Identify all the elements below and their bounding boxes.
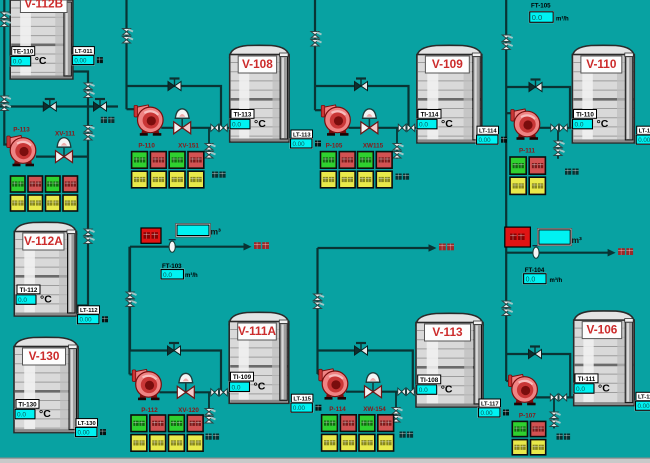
- svg-text:FT-105: FT-105: [531, 3, 551, 10]
- svg-text:TI-114: TI-114: [421, 112, 439, 119]
- svg-text:0.00: 0.00: [481, 410, 494, 417]
- svg-text:V-130: V-130: [29, 349, 60, 363]
- svg-text:0.00: 0.00: [293, 141, 306, 148]
- svg-text:LT-011: LT-011: [75, 49, 93, 55]
- svg-text:0.00: 0.00: [80, 317, 93, 324]
- svg-text:0.0: 0.0: [419, 122, 428, 129]
- svg-text:°C: °C: [39, 408, 51, 420]
- svg-text:0.0: 0.0: [17, 412, 26, 419]
- svg-text:0.0: 0.0: [532, 13, 542, 22]
- svg-text:0.00: 0.00: [78, 429, 91, 436]
- svg-text:0.00: 0.00: [479, 137, 492, 144]
- svg-text:P-110: P-110: [138, 143, 155, 150]
- svg-text:P-107: P-107: [519, 413, 536, 420]
- svg-text:P-113: P-113: [13, 127, 30, 134]
- svg-text:m³: m³: [211, 227, 222, 237]
- svg-text:LT-113: LT-113: [293, 132, 311, 138]
- svg-text:LT-115: LT-115: [293, 397, 311, 403]
- svg-text:°C: °C: [40, 294, 52, 306]
- svg-text:TE-110: TE-110: [13, 49, 34, 56]
- svg-text:0.0: 0.0: [163, 272, 172, 279]
- svg-text:0.00: 0.00: [638, 403, 650, 410]
- svg-text:LT-114: LT-114: [479, 129, 497, 135]
- svg-text:XV-151: XV-151: [178, 143, 199, 150]
- svg-text:TI-112: TI-112: [20, 287, 38, 294]
- svg-text:°C: °C: [597, 118, 609, 130]
- svg-text:LT-119: LT-119: [638, 395, 650, 401]
- svg-text:m³: m³: [572, 235, 583, 245]
- svg-text:0.00: 0.00: [74, 57, 87, 64]
- svg-text:XV-120: XV-120: [178, 407, 199, 414]
- svg-text:LT-130: LT-130: [78, 421, 96, 427]
- svg-text:TI-111: TI-111: [578, 376, 596, 383]
- svg-text:0.0: 0.0: [576, 386, 585, 393]
- svg-text:°C: °C: [441, 384, 453, 396]
- svg-text:V-112B: V-112B: [24, 0, 63, 11]
- svg-text:°C: °C: [254, 381, 266, 393]
- svg-text:°C: °C: [441, 118, 453, 130]
- svg-text:V-111A: V-111A: [238, 324, 277, 338]
- svg-text:V-106: V-106: [587, 323, 618, 337]
- svg-text:°C: °C: [35, 55, 47, 67]
- svg-text:V-108: V-108: [242, 57, 273, 71]
- svg-text:0.0: 0.0: [232, 384, 241, 391]
- svg-text:°C: °C: [598, 382, 610, 394]
- svg-text:LT-117: LT-117: [481, 401, 499, 407]
- svg-text:TI-130: TI-130: [18, 402, 37, 409]
- svg-text:0.0: 0.0: [13, 59, 22, 66]
- svg-text:0.00: 0.00: [638, 137, 650, 144]
- svg-text:V-110: V-110: [586, 57, 617, 71]
- svg-text:m³/h: m³/h: [185, 272, 198, 279]
- svg-text:0.0: 0.0: [419, 387, 428, 394]
- svg-text:0.0: 0.0: [526, 277, 536, 284]
- svg-text:m³/h: m³/h: [550, 277, 563, 284]
- svg-text:V-112A: V-112A: [24, 234, 63, 248]
- svg-text:TI-110: TI-110: [576, 112, 594, 119]
- svg-text:TI-109: TI-109: [233, 374, 252, 381]
- svg-text:0.0: 0.0: [18, 297, 27, 304]
- svg-text:TI-113: TI-113: [234, 112, 252, 119]
- svg-text:m³/h: m³/h: [556, 16, 569, 23]
- svg-text:P-112: P-112: [141, 407, 158, 414]
- svg-text:LT-112: LT-112: [80, 308, 98, 314]
- svg-text:V-113: V-113: [432, 325, 463, 339]
- svg-text:P-114: P-114: [329, 406, 346, 413]
- svg-text:LT-118: LT-118: [639, 129, 650, 135]
- svg-text:0.0: 0.0: [575, 122, 584, 129]
- svg-text:V-109: V-109: [432, 57, 463, 71]
- svg-text:0.00: 0.00: [293, 405, 306, 412]
- svg-text:FT-104: FT-104: [525, 267, 545, 274]
- svg-text:°C: °C: [254, 118, 266, 130]
- svg-text:P-111: P-111: [519, 148, 536, 155]
- svg-text:XW-154: XW-154: [363, 406, 386, 413]
- svg-text:TI-108: TI-108: [420, 377, 439, 384]
- svg-text:0.0: 0.0: [232, 122, 241, 129]
- svg-text:XW115: XW115: [363, 143, 384, 150]
- svg-text:P-105: P-105: [326, 143, 343, 150]
- svg-text:XV-111: XV-111: [55, 131, 75, 138]
